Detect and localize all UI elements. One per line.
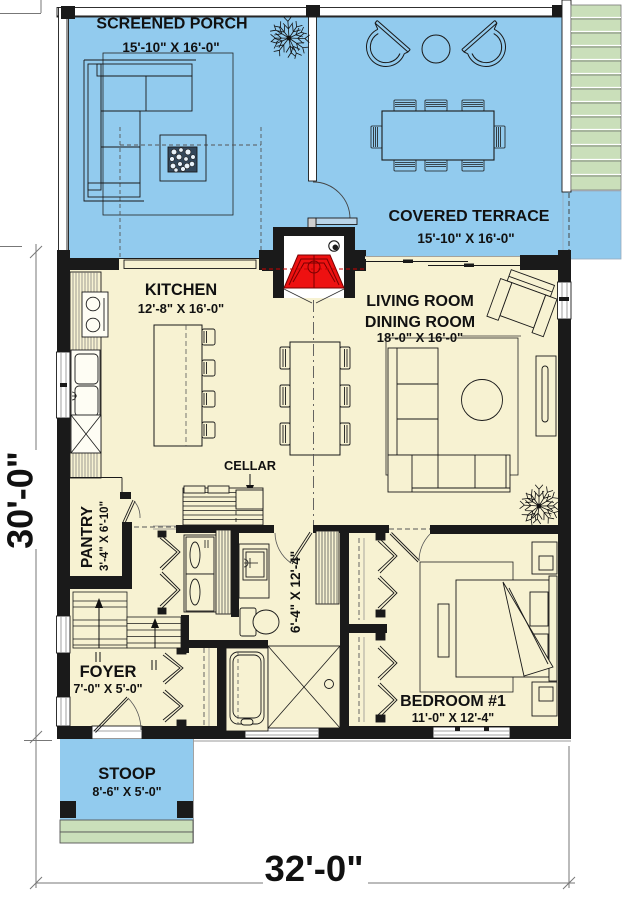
svg-text:3'-4" X 6'-10": 3'-4" X 6'-10" <box>99 501 111 571</box>
svg-text:KITCHEN: KITCHEN <box>145 281 217 299</box>
svg-text:15'-10" X 16'-0": 15'-10" X 16'-0" <box>417 231 514 246</box>
svg-text:PANTRY: PANTRY <box>79 505 96 568</box>
svg-text:18'-0" X 16'-0": 18'-0" X 16'-0" <box>377 330 463 345</box>
svg-text:STOOP: STOOP <box>98 765 155 783</box>
svg-text:32'-0": 32'-0" <box>264 848 363 889</box>
svg-text:6'-4" X 12'-4": 6'-4" X 12'-4" <box>288 551 303 633</box>
svg-text:SCREENED PORCH: SCREENED PORCH <box>96 16 247 33</box>
svg-text:DINING ROOM: DINING ROOM <box>365 314 475 331</box>
svg-text:11'-0" X 12'-4": 11'-0" X 12'-4" <box>412 711 495 725</box>
svg-text:7'-0" X 5'-0": 7'-0" X 5'-0" <box>73 682 142 696</box>
svg-text:30'-0": 30'-0" <box>0 451 41 549</box>
svg-text:8'-6" X 5'-0": 8'-6" X 5'-0" <box>92 785 161 799</box>
svg-text:FOYER: FOYER <box>80 663 137 681</box>
svg-text:12'-8" X 16'-0": 12'-8" X 16'-0" <box>138 301 224 316</box>
svg-text:COVERED TERRACE: COVERED TERRACE <box>389 208 550 225</box>
svg-text:LIVING ROOM: LIVING ROOM <box>366 293 474 310</box>
svg-text:BEDROOM #1: BEDROOM #1 <box>400 693 506 710</box>
svg-text:CELLAR: CELLAR <box>224 458 276 473</box>
